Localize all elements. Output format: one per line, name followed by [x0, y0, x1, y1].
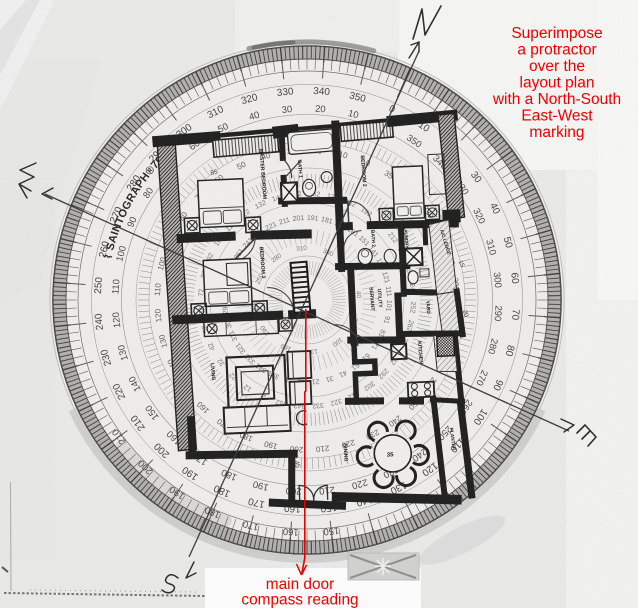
svg-text:East-West: East-West: [521, 108, 593, 125]
svg-text:over the: over the: [529, 58, 585, 75]
svg-text:a protractor: a protractor: [517, 42, 596, 59]
svg-text:compass reading: compass reading: [241, 592, 358, 608]
svg-text:Superimpose: Superimpose: [511, 25, 602, 42]
svg-text:layout plan: layout plan: [520, 75, 595, 92]
svg-text:with a North-South: with a North-South: [492, 91, 621, 108]
svg-text:marking: marking: [529, 124, 584, 141]
svg-text:main door: main door: [266, 576, 334, 593]
